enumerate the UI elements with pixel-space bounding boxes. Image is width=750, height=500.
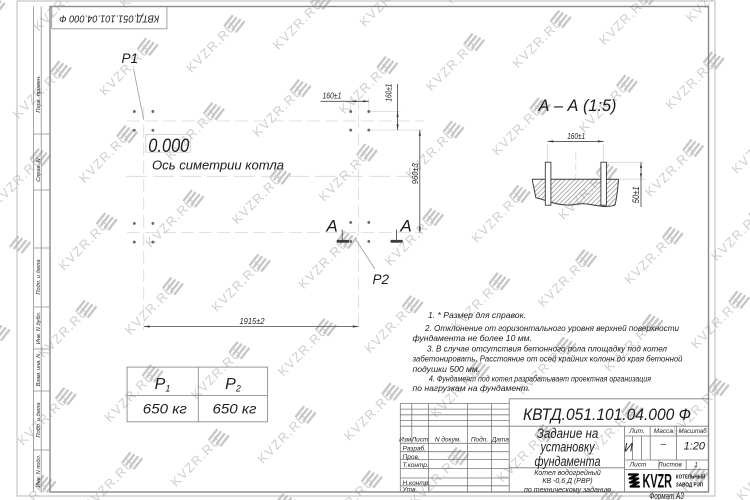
svg-text:фундамента: фундамента <box>535 454 601 469</box>
svg-text:Лист: Лист <box>411 437 429 444</box>
svg-text:фундамента не более 10 мм.: фундамента не более 10 мм. <box>413 333 532 343</box>
svg-text:Дата: Дата <box>491 437 510 444</box>
svg-text:И: И <box>624 441 633 455</box>
svg-text:4. Фундамент под котел разраба: 4. Фундамент под котел разрабатывает про… <box>429 373 651 383</box>
svg-text:0.000: 0.000 <box>148 136 189 157</box>
svg-text:Инв. N дубл.: Инв. N дубл. <box>36 312 42 344</box>
svg-text:Пров.: Пров. <box>403 454 420 461</box>
svg-text:А: А <box>325 217 337 236</box>
svg-text:КОТЕЛЬНЫЙ: КОТЕЛЬНЫЙ <box>676 472 706 480</box>
svg-text:подушки 500 мм.: подушки 500 мм. <box>413 364 481 374</box>
svg-text:Лит.: Лит. <box>628 428 644 435</box>
svg-text:650 кг: 650 кг <box>213 401 257 417</box>
svg-text:3. В случае отсутствия бетонно: 3. В случае отсутствия бетонного пола пл… <box>427 343 667 353</box>
svg-text:Листов: Листов <box>657 462 682 469</box>
svg-text:50±1: 50±1 <box>631 186 641 203</box>
svg-text:Т.контр.: Т.контр. <box>403 462 429 469</box>
svg-text:Лист: Лист <box>629 462 647 469</box>
svg-text:160±1: 160±1 <box>384 83 394 101</box>
svg-text:–: – <box>660 439 667 450</box>
svg-text:Масса: Масса <box>654 428 674 435</box>
svg-text:1915±2: 1915±2 <box>240 316 265 326</box>
svg-text:КВТД.051.101.04.000 Ф: КВТД.051.101.04.000 Ф <box>59 13 159 25</box>
svg-text:650 кг: 650 кг <box>143 401 187 417</box>
svg-text:Справ. N: Справ. N <box>36 157 42 181</box>
svg-text:Инв. N подл.: Инв. N подл. <box>36 455 42 488</box>
svg-text:960±3: 960±3 <box>410 163 420 184</box>
svg-text:160±1: 160±1 <box>567 131 585 141</box>
svg-text:P1: P1 <box>122 51 139 66</box>
svg-text:установку: установку <box>540 440 596 455</box>
svg-text:КВ -0,6 Д (РВР): КВ -0,6 Д (РВР) <box>542 478 592 485</box>
svg-text:забетонировать. Расстояние от: забетонировать. Расстояние от осей крайн… <box>412 354 683 364</box>
svg-text:по техническому заданию: по техническому заданию <box>524 486 612 494</box>
svg-text:Взам. инв. N: Взам. инв. N <box>36 353 42 387</box>
svg-text:1. * Размер для справок.: 1. * Размер для справок. <box>428 310 526 320</box>
svg-text:КВТД.051.101.04.000 Ф: КВТД.051.101.04.000 Ф <box>523 406 691 424</box>
svg-text:Подп. и дата: Подп. и дата <box>36 259 42 294</box>
svg-text:по нагрузкам на фундамент.: по нагрузкам на фундамент. <box>413 383 531 393</box>
svg-text:Утв.: Утв. <box>402 486 418 493</box>
svg-text:Разраб.: Разраб. <box>403 445 427 453</box>
svg-text:P2: P2 <box>373 272 390 287</box>
svg-text:Подп.: Подп. <box>471 436 488 444</box>
svg-text:KVZR: KVZR <box>643 472 673 493</box>
svg-text:А – А (1:5): А – А (1:5) <box>538 96 617 115</box>
svg-text:N докум.: N докум. <box>435 436 461 444</box>
svg-text:Перв. примен.: Перв. примен. <box>36 75 42 112</box>
svg-text:А: А <box>399 217 411 236</box>
svg-text:2. Отклонение от горизонтально: 2. Отклонение от горизонтального уровня … <box>424 323 679 333</box>
svg-text:1:20: 1:20 <box>684 441 706 453</box>
svg-text:Формат А3: Формат А3 <box>649 491 684 500</box>
svg-text:Подп. и дата: Подп. и дата <box>36 402 42 437</box>
svg-text:ЗАВОД РЭП: ЗАВОД РЭП <box>676 482 704 488</box>
svg-text:Масштаб: Масштаб <box>679 427 707 435</box>
svg-text:160±1: 160±1 <box>323 90 342 100</box>
svg-text:Котел водогрейный: Котел водогрейный <box>534 469 601 477</box>
svg-text:Ось симетрии котла: Ось симетрии котла <box>152 158 284 173</box>
svg-text:1: 1 <box>694 462 698 469</box>
